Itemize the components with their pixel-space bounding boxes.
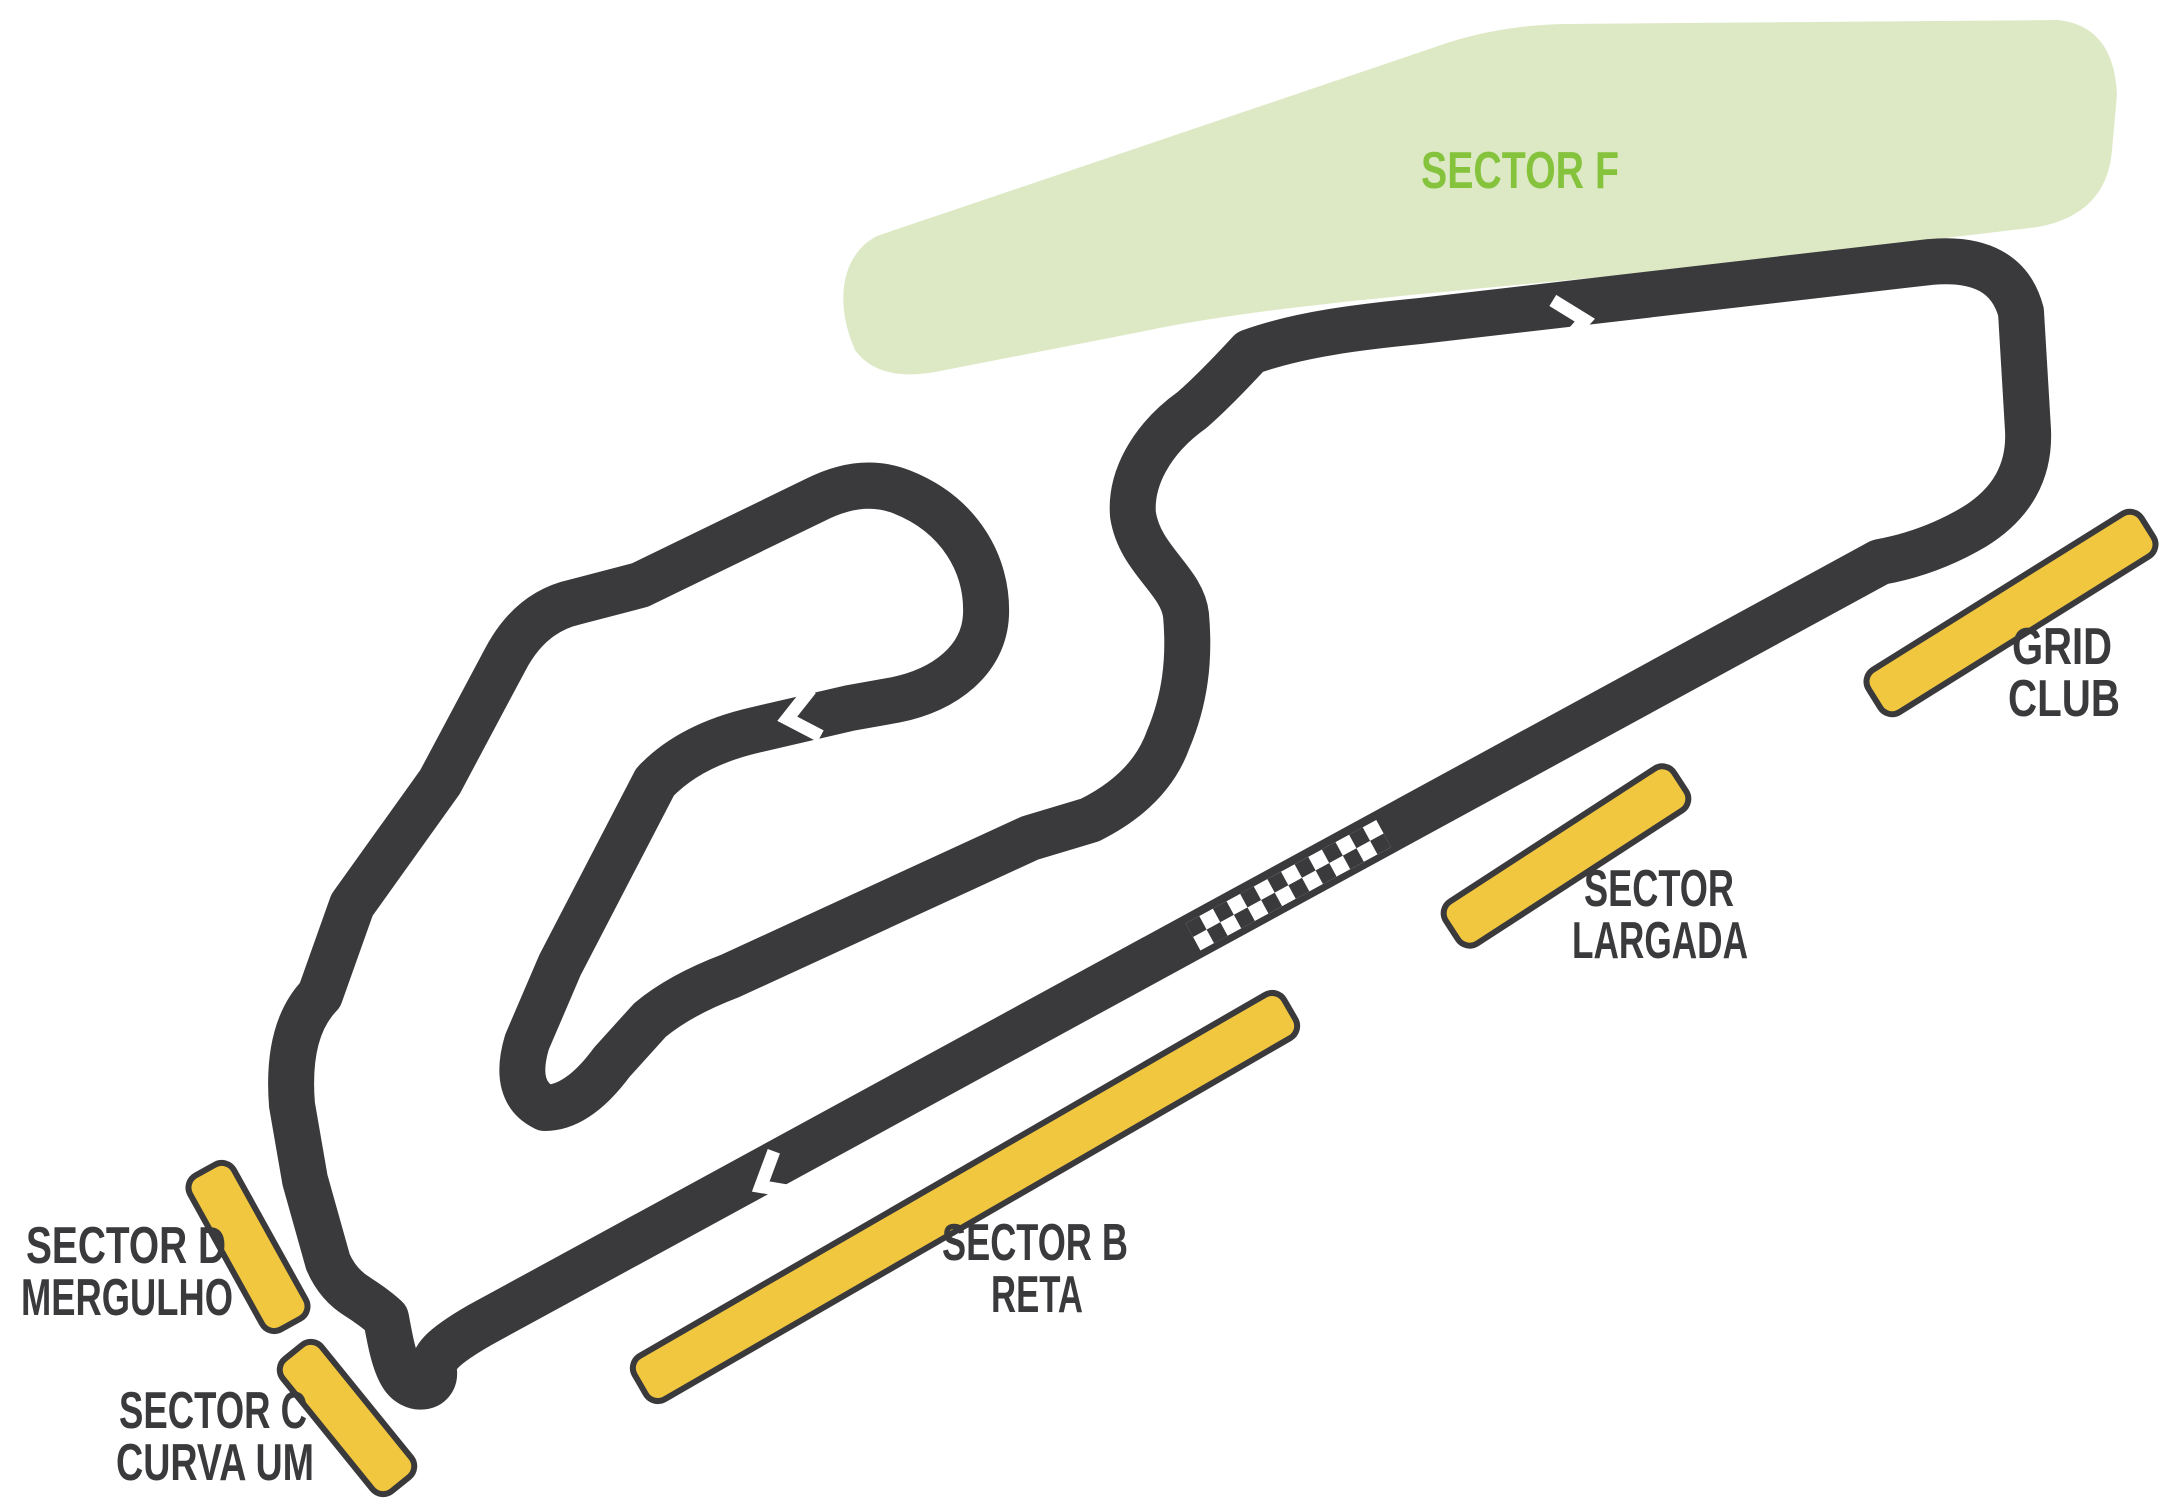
sector-grid-club-label: GRID CLUB [2008,618,2120,728]
svg-text:SECTOR B: SECTOR B [942,1214,1128,1272]
start-finish-checker [1186,820,1391,951]
track-outline [291,261,2028,1386]
svg-text:SECTOR D: SECTOR D [26,1217,226,1275]
svg-text:LARGADA: LARGADA [1572,912,1748,970]
sector-b-reta-label: SECTOR B RETA [942,1214,1128,1324]
svg-text:MERGULHO: MERGULHO [21,1269,233,1327]
svg-text:SECTOR: SECTOR [1584,860,1734,918]
track-sector-map: SECTOR F GRID CLUB SECTOR LARGADA SECT [0,0,2169,1505]
svg-text:RETA: RETA [991,1266,1083,1324]
zone-sector-f-label: SECTOR F [1421,142,1619,200]
svg-text:GRID: GRID [2012,618,2112,676]
sector-d-mergulho-label: SECTOR D MERGULHO [21,1217,233,1327]
svg-text:SECTOR C: SECTOR C [119,1382,307,1440]
svg-text:CLUB: CLUB [2008,670,2120,728]
svg-text:CURVA UM: CURVA UM [116,1434,314,1492]
sector-c-curva-um-label: SECTOR C CURVA UM [116,1382,314,1492]
sector-largada-label: SECTOR LARGADA [1572,860,1748,970]
